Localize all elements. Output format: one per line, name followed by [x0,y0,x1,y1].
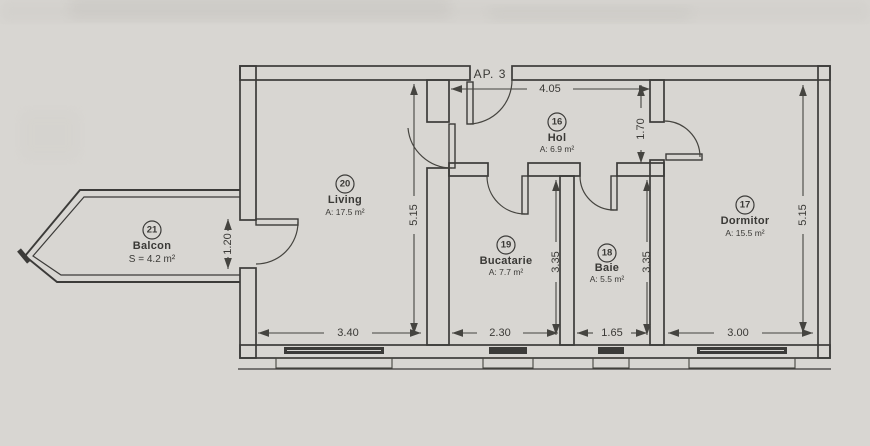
room-name-living: Living [328,194,362,206]
dim-hol-width: 4.05 [539,83,560,95]
dim-living-height: 5.15 [408,204,420,225]
dim-living-width: 3.40 [337,327,358,339]
dim-dormitor-height: 5.15 [797,204,809,225]
dim-bucatarie-height: 3.35 [550,251,562,272]
dim-bucatarie-width: 2.30 [489,327,510,339]
room-name-dormitor: Dormitor [721,215,770,227]
room-number-dormitor: 17 [740,200,751,211]
room-name-balcon: Balcon [133,240,171,252]
dim-balcon-door: 1.20 [222,233,234,254]
window-baie [598,347,624,354]
room-number-bucatarie: 19 [501,240,512,251]
room-number-hol: 16 [552,117,563,128]
room-name-bucatarie: Bucatarie [480,255,533,267]
room-area-baie: A: 5.5 m² [590,274,625,284]
dim-hol-depth: 1.70 [635,118,647,139]
room-number-baie: 18 [602,248,613,259]
room-number-balcon: 21 [147,225,158,236]
room-area-balcon: S = 4.2 m² [129,254,176,265]
room-area-dormitor: A: 15.5 m² [725,228,764,238]
room-name-baie: Baie [595,262,619,274]
room-area-hol: A: 6.9 m² [540,144,575,154]
room-area-living: A: 17.5 m² [325,207,364,217]
dim-baie-height: 3.35 [641,251,653,272]
floor-plan-drawing: 4.05 1.70 5.15 3.40 3.35 2.30 3.35 1.65 [0,0,870,446]
room-name-hol: Hol [548,132,567,144]
apartment-label: AP. 3 [474,67,507,81]
room-number-living: 20 [340,179,351,190]
dim-baie-width: 1.65 [601,327,622,339]
dim-dormitor-width: 3.00 [727,327,748,339]
room-area-bucatarie: A: 7.7 m² [489,267,524,277]
window-bucatarie [489,347,527,354]
floor-plan-scan: 4.05 1.70 5.15 3.40 3.35 2.30 3.35 1.65 [0,0,870,446]
